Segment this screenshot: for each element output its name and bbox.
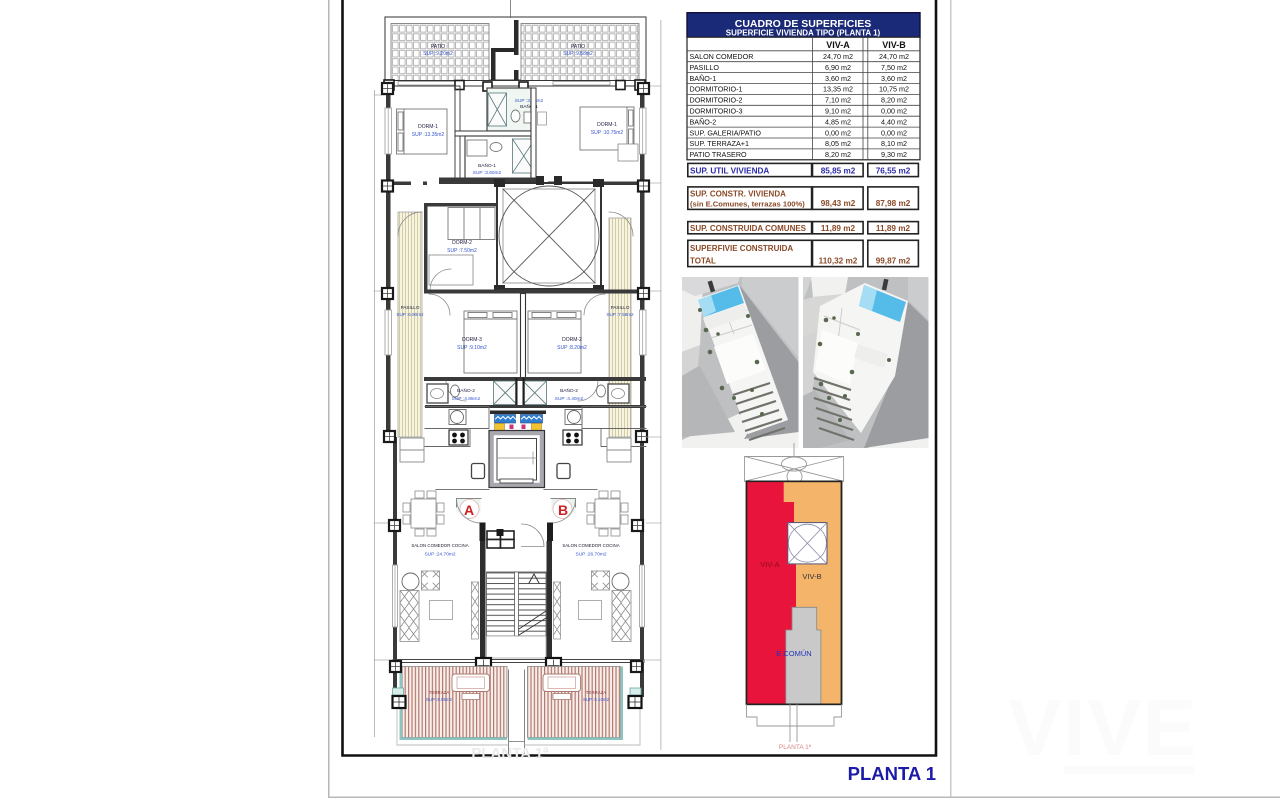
svg-text:7,50 m2: 7,50 m2 xyxy=(881,63,907,72)
svg-text:PASILLO: PASILLO xyxy=(690,63,720,72)
svg-text:SUP :3,60m2: SUP :3,60m2 xyxy=(515,98,544,104)
svg-text:9,10 m2: 9,10 m2 xyxy=(825,107,851,116)
svg-text:BAÑO-2: BAÑO-2 xyxy=(457,387,475,394)
svg-text:TOTAL: TOTAL xyxy=(690,257,716,266)
svg-text:BAÑO-1: BAÑO-1 xyxy=(690,74,717,83)
svg-text:TERRAZA: TERRAZA xyxy=(429,690,450,695)
svg-text:DORMITORIO-1: DORMITORIO-1 xyxy=(690,85,743,94)
svg-text:B: B xyxy=(558,502,568,518)
svg-text:SALON COMEDOR: SALON COMEDOR xyxy=(690,52,754,61)
svg-text:0,00 m2: 0,00 m2 xyxy=(881,107,907,116)
svg-text:SUP :8.20m2: SUP :8.20m2 xyxy=(557,345,587,351)
svg-text:SUP :10.75m2: SUP :10.75m2 xyxy=(591,130,624,136)
svg-text:SUP :6.90m2: SUP :6.90m2 xyxy=(396,312,424,317)
svg-text:24,70 m2: 24,70 m2 xyxy=(879,52,909,61)
svg-text:PATIO TRASERO: PATIO TRASERO xyxy=(690,150,748,159)
svg-text:SUP :24.70m2: SUP :24.70m2 xyxy=(424,552,455,558)
svg-text:DORMITORIO-2: DORMITORIO-2 xyxy=(690,96,743,105)
svg-text:SUP. UTIL VIVIENDA: SUP. UTIL VIVIENDA xyxy=(690,167,769,176)
svg-text:SUP :8.05m2: SUP :8.05m2 xyxy=(426,697,453,702)
svg-text:SUP. CONSTRUIDA COMUNES: SUP. CONSTRUIDA COMUNES xyxy=(690,224,807,233)
svg-text:SUP. CONSTR. VIVIENDA: SUP. CONSTR. VIVIENDA xyxy=(690,189,786,198)
svg-text:10,75 m2: 10,75 m2 xyxy=(879,85,909,94)
svg-text:9,30 m2: 9,30 m2 xyxy=(881,150,907,159)
svg-text:DORM-1: DORM-1 xyxy=(597,122,617,128)
svg-text:DORM-2: DORM-2 xyxy=(562,337,582,343)
svg-text:PATIO: PATIO xyxy=(431,44,445,50)
svg-text:VIV-A: VIV-A xyxy=(826,40,850,50)
svg-text:SUP :7.50m2: SUP :7.50m2 xyxy=(447,248,477,254)
svg-text:SUP :8.10m2: SUP :8.10m2 xyxy=(583,697,610,702)
svg-text:SUP :13.35m2: SUP :13.35m2 xyxy=(412,132,445,138)
svg-text:DORM-1: DORM-1 xyxy=(418,124,438,130)
svg-text:PLANTA 1ª: PLANTA 1ª xyxy=(471,745,549,762)
svg-text:SUP :3.60m2: SUP :3.60m2 xyxy=(473,170,502,176)
svg-text:4,40 m2: 4,40 m2 xyxy=(881,117,907,126)
svg-text:BAÑO-1: BAÑO-1 xyxy=(478,162,496,169)
svg-text:0,00 m2: 0,00 m2 xyxy=(881,128,907,137)
svg-text:SUP :9.58m2: SUP :9.58m2 xyxy=(563,51,593,57)
svg-text:8,20 m2: 8,20 m2 xyxy=(881,96,907,105)
svg-text:8,10 m2: 8,10 m2 xyxy=(881,139,907,148)
svg-text:SUP :4.85m2: SUP :4.85m2 xyxy=(452,396,481,402)
svg-text:PASILLO: PASILLO xyxy=(611,305,630,310)
svg-text:3,60 m2: 3,60 m2 xyxy=(881,74,907,83)
svg-text:PLANTA 1: PLANTA 1 xyxy=(848,763,936,784)
svg-text:DORM-3: DORM-3 xyxy=(462,337,482,343)
svg-text:E.COMÚN: E.COMÚN xyxy=(776,649,811,658)
svg-text:110,32 m2: 110,32 m2 xyxy=(819,257,858,266)
svg-text:TERRAZA: TERRAZA xyxy=(586,690,607,695)
svg-text:8,05 m2: 8,05 m2 xyxy=(825,139,851,148)
svg-text:99,87 m2: 99,87 m2 xyxy=(876,257,911,266)
svg-text:VIV-B: VIV-B xyxy=(882,40,906,50)
svg-text:SALON COMEDOR COCINA: SALON COMEDOR COCINA xyxy=(411,543,468,548)
svg-text:(sin E.Comunes, terrazas 100%): (sin E.Comunes, terrazas 100%) xyxy=(690,200,805,209)
svg-text:SUP :26.70m2: SUP :26.70m2 xyxy=(575,552,606,558)
svg-text:SUP :9.10m2: SUP :9.10m2 xyxy=(457,345,487,351)
svg-text:SUPERFICIE VIVIENDA TIPO (PLA: SUPERFICIE VIVIENDA TIPO (PLANTA 1) xyxy=(726,29,881,38)
svg-text:85,85 m2: 85,85 m2 xyxy=(821,167,856,176)
svg-text:SUP :9.20m2: SUP :9.20m2 xyxy=(423,51,453,57)
svg-text:PLANTA 1ª: PLANTA 1ª xyxy=(779,744,812,751)
svg-text:13,35 m2: 13,35 m2 xyxy=(823,85,853,94)
svg-text:BAÑO-2: BAÑO-2 xyxy=(560,387,578,394)
svg-text:PASILLO: PASILLO xyxy=(401,305,420,310)
svg-text:SUP :7.58m2: SUP :7.58m2 xyxy=(606,312,634,317)
svg-text:VIV-A: VIV-A xyxy=(760,560,780,569)
svg-text:DORMITORIO-3: DORMITORIO-3 xyxy=(690,107,743,116)
svg-text:76,55 m2: 76,55 m2 xyxy=(876,167,911,176)
svg-text:DORM-2: DORM-2 xyxy=(452,240,472,246)
svg-text:SUP :4.40m2: SUP :4.40m2 xyxy=(555,396,584,402)
svg-text:11,89 m2: 11,89 m2 xyxy=(821,224,856,233)
svg-text:SUP. GALERIA/PATIO: SUP. GALERIA/PATIO xyxy=(690,128,762,137)
svg-text:BAÑO-2: BAÑO-2 xyxy=(690,117,717,126)
svg-text:VIVE: VIVE xyxy=(1008,683,1198,772)
svg-text:SUPERFIVIE CONSTRUIDA: SUPERFIVIE CONSTRUIDA xyxy=(690,244,793,253)
svg-text:3,60 m2: 3,60 m2 xyxy=(825,74,851,83)
svg-text:11,89 m2: 11,89 m2 xyxy=(876,224,911,233)
svg-text:4,85 m2: 4,85 m2 xyxy=(825,117,851,126)
svg-text:SUP. TERRAZA+1: SUP. TERRAZA+1 xyxy=(690,139,749,148)
svg-text:24,70 m2: 24,70 m2 xyxy=(823,52,853,61)
svg-text:87,98 m2: 87,98 m2 xyxy=(876,199,911,208)
svg-text:SALON COMEDOR COCINA: SALON COMEDOR COCINA xyxy=(562,543,619,548)
svg-text:PATIO: PATIO xyxy=(571,44,585,50)
svg-text:98,43 m2: 98,43 m2 xyxy=(821,199,856,208)
svg-text:VIV-B: VIV-B xyxy=(802,572,821,581)
svg-text:A: A xyxy=(464,502,474,518)
svg-text:7,10 m2: 7,10 m2 xyxy=(825,96,851,105)
svg-text:0,00 m2: 0,00 m2 xyxy=(825,128,851,137)
svg-text:8,20 m2: 8,20 m2 xyxy=(825,150,851,159)
svg-text:6,90 m2: 6,90 m2 xyxy=(825,63,851,72)
